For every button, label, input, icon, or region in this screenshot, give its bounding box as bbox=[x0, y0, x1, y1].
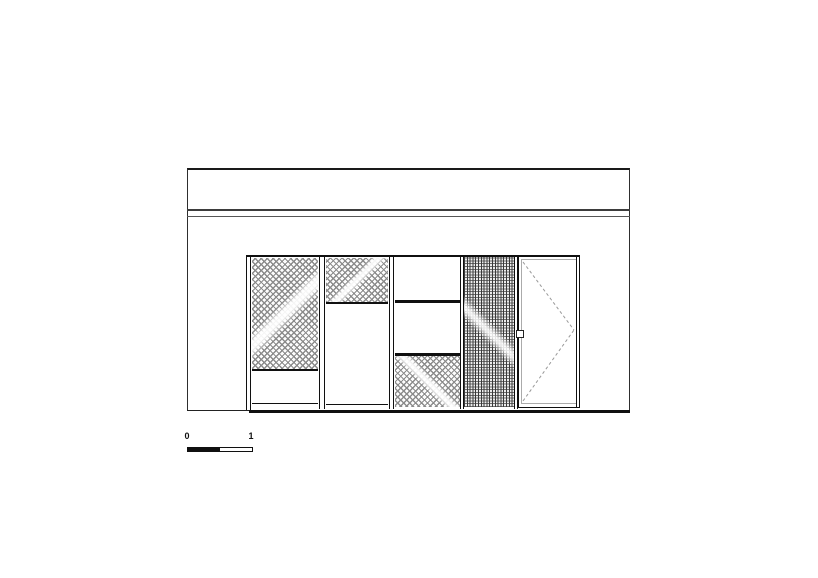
sill-band bbox=[249, 410, 630, 413]
entry-door bbox=[518, 256, 581, 408]
panel-3-mesh bbox=[395, 356, 460, 407]
scale-label-1: 1 bbox=[245, 431, 257, 441]
scale-label-0: 0 bbox=[181, 431, 193, 441]
panel-3-solid-middle bbox=[395, 303, 460, 353]
panel-2-solid bbox=[326, 305, 388, 405]
panel-1-mesh bbox=[252, 258, 318, 369]
door-swing-indicator bbox=[519, 257, 579, 406]
elevation-drawing-canvas: 0 1 bbox=[0, 0, 818, 578]
door-handle bbox=[516, 330, 524, 338]
storefront-left-jamb bbox=[246, 255, 251, 410]
scale-bar bbox=[187, 447, 253, 453]
mullion-2 bbox=[389, 255, 395, 409]
panel-3-solid-top bbox=[395, 257, 460, 300]
mullion-1 bbox=[319, 255, 325, 409]
parapet-line-upper bbox=[187, 209, 630, 211]
panel-1-solid bbox=[252, 371, 318, 404]
parapet-line-lower bbox=[187, 216, 630, 217]
panel-2-mesh bbox=[326, 258, 388, 302]
scale-bar-filled-half bbox=[188, 448, 220, 452]
storefront-right-jamb bbox=[576, 256, 577, 408]
panel-4-dense-mesh bbox=[464, 257, 514, 407]
